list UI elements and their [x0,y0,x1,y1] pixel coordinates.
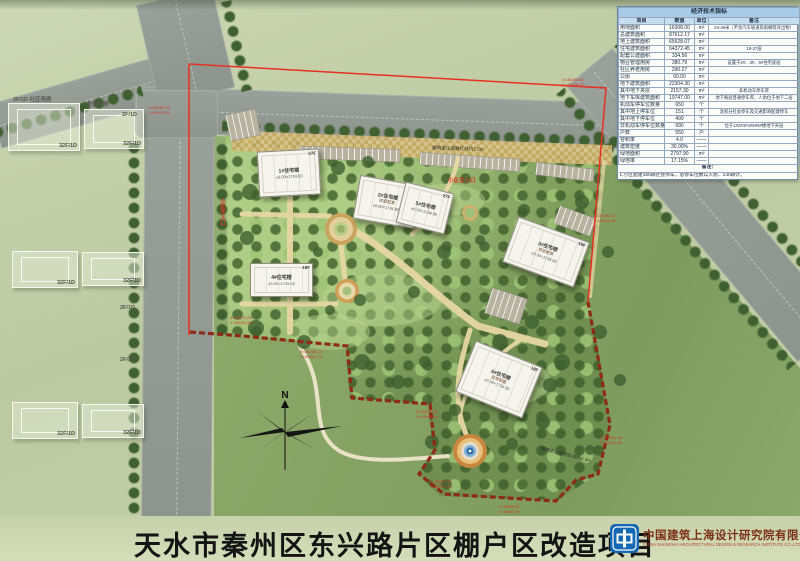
context-building-label: 32F/1D [59,143,77,149]
compass-north-label: N [281,390,288,401]
compass-rose: N [228,388,344,476]
table-header-row: 项目数值单位备注 [619,18,800,25]
context-building: 32F/1D [12,251,78,288]
indicator-row: 用地面积16308.00m²24-49米（不含汽车坡道及雨棚等突出物） [619,25,800,32]
indicator-row: 总建筑面积87612.17m² [619,32,800,39]
indicator-row: 绿地率17.15%—— [619,158,800,165]
compass-star [240,412,342,452]
indicator-row: 社区养老用房290.27m² [619,67,800,74]
indicator-row: 绿地面积2797.90m² [619,151,800,158]
indicator-row: 建筑密度30.00%—— [619,144,800,151]
indicator-row: 非机动车停车位数量990个位于1#2#3#4#5#6#楼地下夹层 [619,123,800,130]
indicator-row: 机动车停车位数量650个 [619,102,800,109]
road-intersection [136,90,218,138]
road-lane-marking [175,0,198,94]
indicator-row: 户数550户 [619,130,800,137]
logo-company-name-en: CHINA SHANGHAI ARCHITECTURAL DESIGN & RE… [643,543,800,548]
indicator-row: 容积率4.0—— [619,137,800,144]
indicator-row: 其中地下停车位499个 [619,116,800,123]
indicator-row: 其中地下夹层2157.30m²非机动车停车库 [619,88,800,95]
street-trees [126,138,142,518]
table-title: 经济技术指标 [619,8,800,18]
context-building-label: 32F/1D [57,431,75,437]
context-building: 32F/1D [12,402,78,439]
table-header-cell: 数值 [665,18,695,25]
context-building-label: 32F/1D [57,280,75,286]
table-header-cell: 项目 [619,18,665,25]
road-lane-marking [176,126,180,515]
indicator-row: 公厕60.00m² [619,74,800,81]
design-institute-logo: 中国建筑上海设计研究院有限公司 CHINA SHANGHAI ARCHITECT… [609,523,800,554]
indicator-row: 其中地上停车位151个含部分社会停车及交通影响配建停车 [619,109,800,116]
csadi-logo-icon [609,523,640,554]
economic-indicator-table: 经济技术指标 项目数值单位备注 用地面积16308.00m²24-49米（不含汽… [617,6,798,180]
table-header-cell: 单位 [695,18,709,25]
table-header-cell: 备注 [709,18,800,25]
indicator-row: 地下建筑面积22304.30m² [619,81,800,88]
logo-company-name-cn: 中国建筑上海设计研究院有限公司 [643,530,800,543]
road-west-vertical [141,118,215,524]
indicator-row: 物业管理用房380.79m²设置于2#、3#、6#住宅底层 [619,60,800,67]
indicator-row: 地上建筑面积65628.07m² [619,39,800,46]
indicator-row: 住宅建筑面积64372.45m²18-27层 [619,46,800,53]
indicator-row: 配套公建面积334.56m² [619,53,800,60]
street-trees [215,142,229,337]
table-note: 1.小区配建150辆社会停车，总停车位数以人防、140辆计。 [619,172,800,179]
table-note-title: 备注： [619,165,800,173]
indicator-row: 地下车库建筑面积19747.00m²地下两层普通停车库，人防位于地下二层 [619,95,800,102]
site-plan-canvas: 27F1#住宅楼±0.00=1734.5027F2#住宅楼底层配套±0.00=1… [0,0,800,561]
